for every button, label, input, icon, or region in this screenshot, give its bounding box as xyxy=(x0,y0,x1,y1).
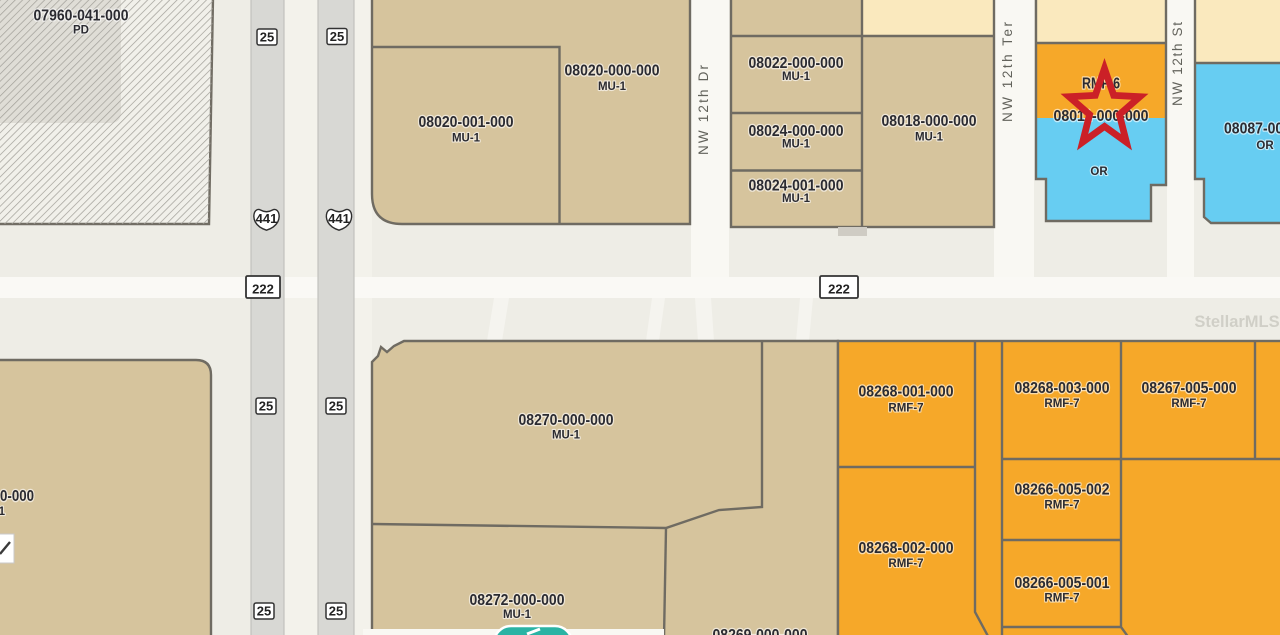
svg-text:441: 441 xyxy=(328,211,350,226)
svg-text:OR: OR xyxy=(1090,166,1108,178)
svg-text:08024-000-000: 08024-000-000 xyxy=(749,123,844,140)
svg-text:08266-005-001: 08266-005-001 xyxy=(1015,575,1110,592)
svg-text:222: 222 xyxy=(828,282,850,297)
svg-text:StellarMLS: StellarMLS xyxy=(1194,313,1279,331)
svg-text:MU-1: MU-1 xyxy=(0,506,6,518)
svg-text:RMF-7: RMF-7 xyxy=(1171,398,1206,410)
svg-text:MU-1: MU-1 xyxy=(598,81,627,93)
svg-text:RMF-7: RMF-7 xyxy=(888,403,923,415)
svg-text:MU-1: MU-1 xyxy=(915,132,944,144)
svg-text:RMF-7: RMF-7 xyxy=(1044,500,1079,512)
svg-text:08267-005-000: 08267-005-000 xyxy=(1142,380,1237,397)
svg-text:MU-1: MU-1 xyxy=(552,430,581,442)
svg-text:MU-1: MU-1 xyxy=(782,193,811,205)
svg-text:08268-003-000: 08268-003-000 xyxy=(1015,380,1110,397)
svg-text:08020-001-000: 08020-001-000 xyxy=(419,114,514,131)
svg-text:08087-000-000: 08087-000-000 xyxy=(1224,121,1280,138)
svg-text:MU-1: MU-1 xyxy=(782,71,811,83)
svg-text:RMF-7: RMF-7 xyxy=(1044,593,1079,605)
svg-text:PD: PD xyxy=(73,25,89,37)
svg-text:08020-000-000: 08020-000-000 xyxy=(565,63,660,80)
svg-text:25: 25 xyxy=(259,399,273,414)
svg-text:08268-001-000: 08268-001-000 xyxy=(859,384,954,401)
svg-text:07960-041-000: 07960-041-000 xyxy=(34,8,129,25)
svg-text:08266-005-002: 08266-005-002 xyxy=(1015,482,1110,499)
svg-text:25: 25 xyxy=(257,604,271,619)
svg-text:MU-1: MU-1 xyxy=(503,609,532,621)
svg-text:NW 12th Dr: NW 12th Dr xyxy=(696,65,711,156)
svg-text:441: 441 xyxy=(256,211,278,226)
svg-text:MU-1: MU-1 xyxy=(782,139,811,151)
svg-text:08024-001-000: 08024-001-000 xyxy=(749,178,844,195)
svg-text:08022-000-000: 08022-000-000 xyxy=(749,55,844,72)
svg-text:08272-000-000: 08272-000-000 xyxy=(470,592,565,609)
svg-text:RMF-7: RMF-7 xyxy=(888,558,923,570)
svg-text:25: 25 xyxy=(329,399,343,414)
svg-text:0-000: 0-000 xyxy=(0,488,34,505)
svg-text:08011-000-000: 08011-000-000 xyxy=(1054,108,1149,125)
svg-text:MU-1: MU-1 xyxy=(452,133,481,145)
svg-text:25: 25 xyxy=(260,30,274,45)
svg-text:NW 12th St: NW 12th St xyxy=(1170,22,1185,106)
svg-text:08270-000-000: 08270-000-000 xyxy=(519,412,614,429)
svg-text:NW 12th Ter: NW 12th Ter xyxy=(1000,22,1015,123)
svg-text:08269-000-000: 08269-000-000 xyxy=(713,627,808,635)
svg-text:222: 222 xyxy=(252,282,274,297)
svg-text:25: 25 xyxy=(330,29,344,44)
svg-text:08268-002-000: 08268-002-000 xyxy=(859,540,954,557)
svg-text:08018-000-000: 08018-000-000 xyxy=(882,113,977,130)
svg-text:25: 25 xyxy=(329,604,343,619)
svg-text:OR: OR xyxy=(1256,140,1274,152)
svg-text:RMF-7: RMF-7 xyxy=(1044,398,1079,410)
